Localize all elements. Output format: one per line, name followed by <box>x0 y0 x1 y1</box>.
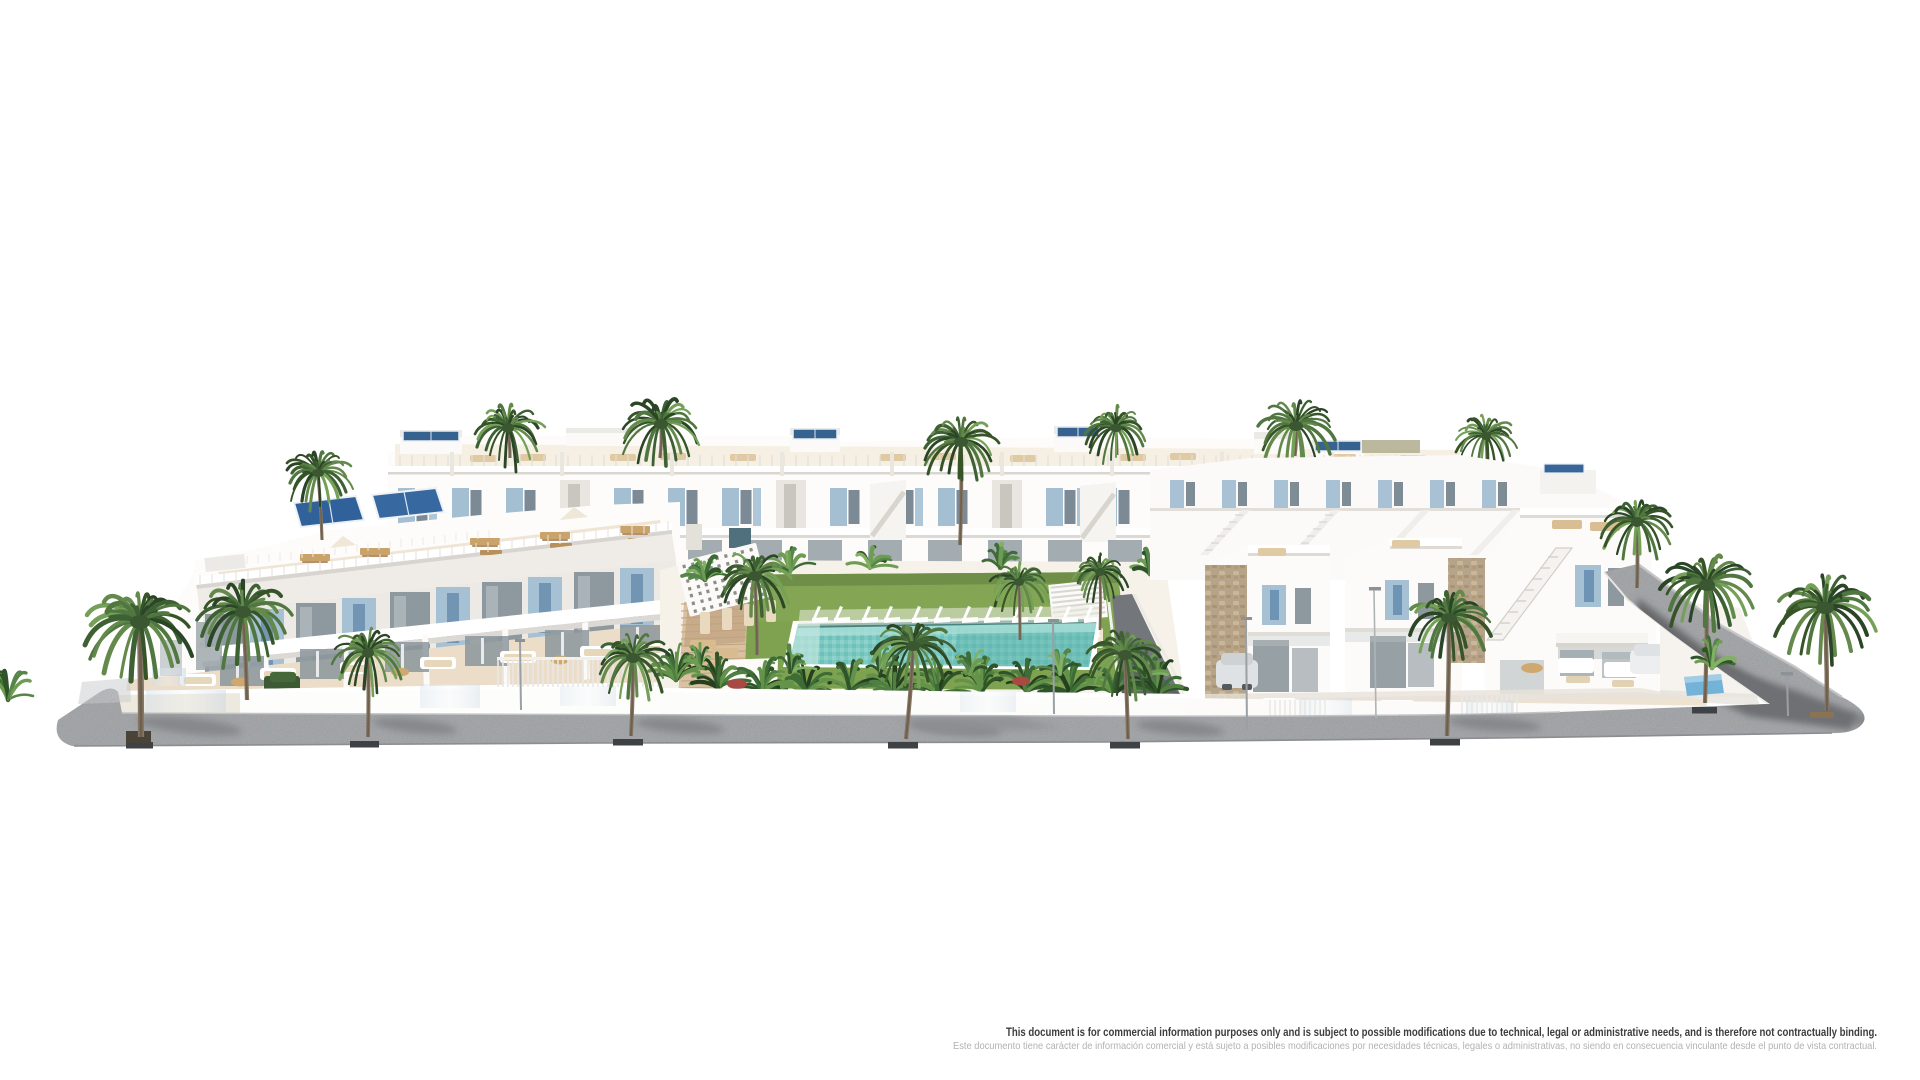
svg-text:This document is for commercia: This document is for commercial informat… <box>1006 1026 1877 1039</box>
svg-text:Este documento tiene carácter: Este documento tiene carácter de informa… <box>953 1041 1877 1052</box>
